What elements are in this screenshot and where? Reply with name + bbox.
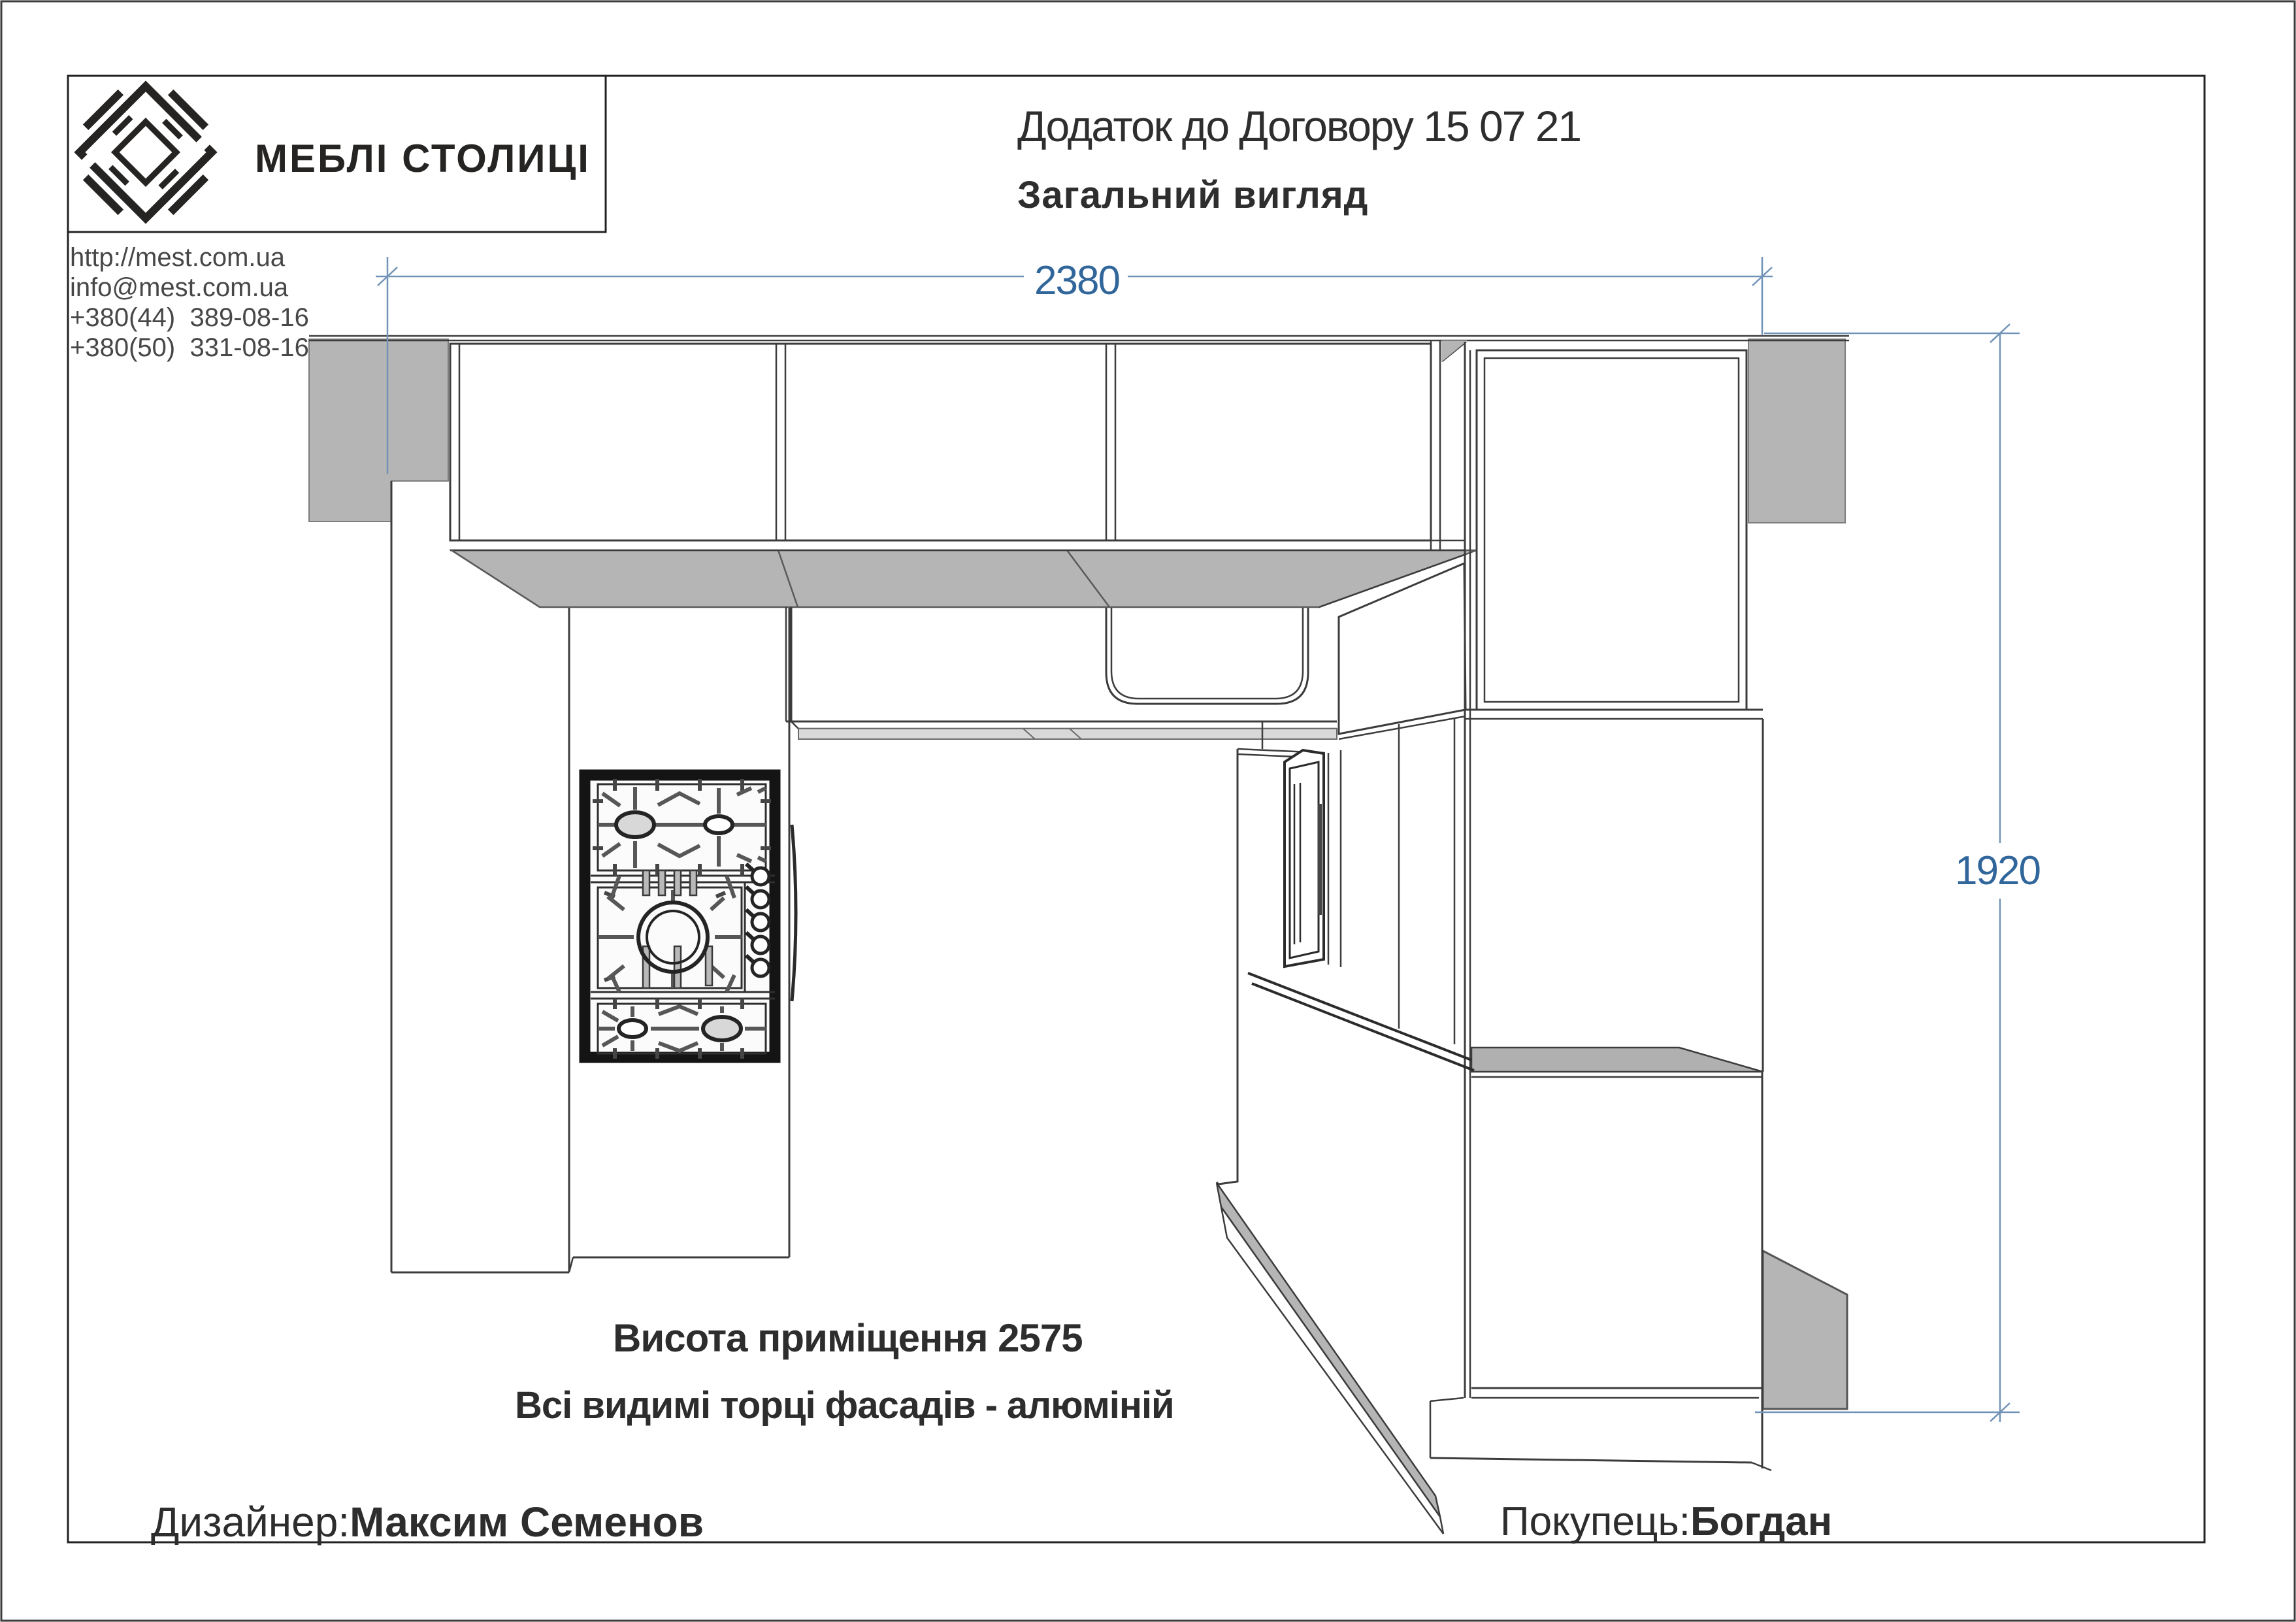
svg-text:1920: 1920 xyxy=(1955,848,2040,893)
svg-text:+380(50) 331-08-16: +380(50) 331-08-16 xyxy=(70,333,309,362)
svg-text:Всі видимі торці фасадів - алю: Всі видимі торці фасадів - алюміній xyxy=(515,1384,1174,1427)
svg-text:Додаток до Договору 15 07 21: Додаток до Договору 15 07 21 xyxy=(1017,102,1581,150)
svg-text:info@mest.com.ua: info@mest.com.ua xyxy=(70,273,289,302)
svg-text:МЕБЛІ СТОЛИЦІ: МЕБЛІ СТОЛИЦІ xyxy=(255,137,591,180)
svg-text:Загальний вигляд: Загальний вигляд xyxy=(1017,174,1369,216)
svg-text:Висота приміщення 2575: Висота приміщення 2575 xyxy=(613,1316,1083,1360)
svg-text:http://mest.com.ua: http://mest.com.ua xyxy=(70,243,286,272)
svg-text:Покупець:Богдан: Покупець:Богдан xyxy=(1500,1499,1832,1544)
svg-text:+380(44) 389-08-16: +380(44) 389-08-16 xyxy=(70,303,309,332)
svg-text:Дизайнер:Максим Семенов: Дизайнер:Максим Семенов xyxy=(151,1498,704,1546)
svg-text:2380: 2380 xyxy=(1034,258,1119,303)
